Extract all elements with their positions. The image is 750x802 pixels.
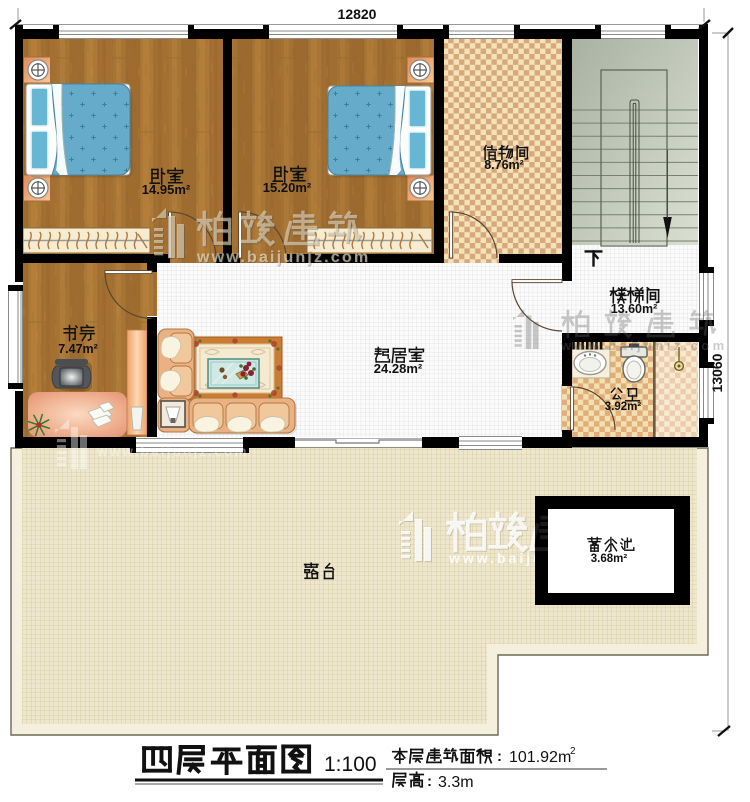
svg-text:www.baijunjz.com: www.baijunjz.com: [96, 444, 249, 459]
svg-text::: :: [427, 773, 432, 790]
svg-text:1:100: 1:100: [324, 753, 377, 776]
svg-text:3.68m²: 3.68m²: [591, 553, 628, 565]
svg-text:www.baijunjz.com: www.baijunjz.com: [196, 249, 370, 266]
svg-text:24.28m²: 24.28m²: [374, 361, 423, 376]
svg-text:8.76m²: 8.76m²: [484, 158, 524, 172]
svg-text:12820: 12820: [338, 6, 377, 22]
svg-text:3.3m: 3.3m: [438, 774, 474, 791]
svg-text:www.baijuniz.com: www.baijuniz.com: [560, 338, 728, 353]
svg-text:3.92m²: 3.92m²: [605, 401, 642, 413]
svg-text:13.60m²: 13.60m²: [611, 302, 658, 316]
svg-text:7.47m²: 7.47m²: [58, 342, 98, 356]
svg-text:15.20m²: 15.20m²: [263, 180, 312, 195]
svg-text:13060: 13060: [709, 353, 725, 392]
svg-text:14.95m²: 14.95m²: [142, 182, 191, 197]
svg-text:101.92m: 101.92m: [509, 749, 571, 766]
svg-text::: :: [497, 748, 502, 765]
svg-text:2: 2: [570, 746, 576, 757]
